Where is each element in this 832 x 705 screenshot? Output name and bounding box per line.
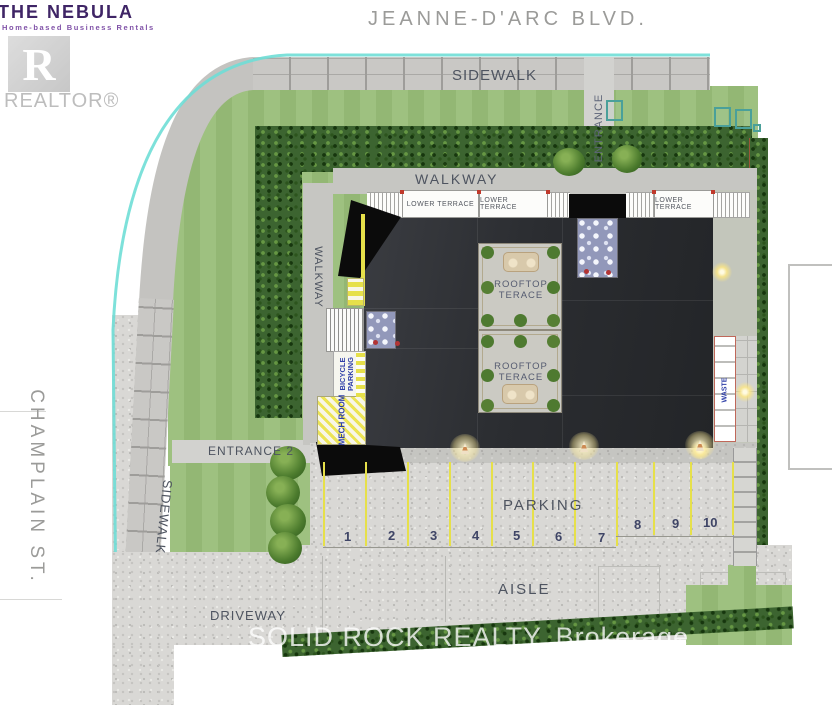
yellow-steps [347, 278, 364, 306]
parking-line [407, 462, 409, 546]
waste-label: WASTE [722, 378, 729, 403]
brokerage-watermark: SOLID ROCK REALTY, Brokerage [248, 622, 689, 653]
rooftop-2-line2: TERACE [486, 372, 556, 383]
parking-line [653, 462, 655, 535]
parking-line [732, 462, 734, 535]
parking-line [616, 462, 618, 546]
aisle-label: AISLE [498, 581, 551, 598]
parking-line [491, 462, 493, 546]
listing-tagline: Home-based Business Rentals [2, 23, 155, 32]
sidewalk-top-label: SIDEWALK [452, 67, 537, 84]
parking-boundary [323, 547, 616, 548]
parking-line [365, 462, 367, 546]
realtor-logo-letter: R [22, 38, 55, 91]
stairwell-top [577, 218, 618, 278]
parking-line [323, 462, 325, 546]
tree [612, 145, 642, 173]
terrace-table [502, 384, 538, 404]
terrace-table [503, 252, 539, 272]
tree [268, 532, 302, 564]
stairs-left [326, 308, 364, 352]
parking-space-9: 9 [672, 516, 679, 531]
rooftop-1-line2: TERACE [486, 290, 556, 301]
walkway-top-label: WALKWAY [415, 171, 499, 187]
stair-canopy [569, 194, 626, 218]
survey-dot [546, 190, 550, 194]
bicycle-line2: PARKING [347, 357, 355, 391]
parking-space-6: 6 [555, 529, 562, 544]
rooftop-1-line1: ROOFTOP [486, 279, 556, 290]
rooftop-2-line1: ROOFTOP [486, 361, 556, 372]
parking-space-5: 5 [513, 528, 520, 543]
mech-room-label: MECH ROOM [338, 395, 347, 446]
building-black-canopies [0, 0, 832, 705]
parking-label: PARKING [503, 497, 583, 514]
terrace-shrubs [481, 246, 494, 259]
parking-space-4: 4 [472, 528, 479, 543]
entrance2-label: ENTRANCE 2 [208, 444, 294, 458]
survey-dot [477, 190, 481, 194]
street-name-top: JEANNE-D'ARC BLVD. [368, 8, 648, 31]
aisle-line [445, 556, 446, 622]
bollard-cone [694, 439, 706, 452]
survey-dot [711, 190, 715, 194]
parking-space-3: 3 [430, 528, 437, 543]
parking-space-1: 1 [344, 529, 351, 544]
bicycle-hatch [356, 352, 365, 397]
realtor-logo: R [8, 36, 70, 92]
rooftop-terrace-1-label: ROOFTOP TERACE [486, 279, 556, 301]
stairwell-left [366, 311, 396, 349]
realtor-wordmark: REALTOR® [4, 90, 119, 113]
listing-title: THE NEBULA [0, 2, 134, 23]
lamp-glow [712, 262, 732, 282]
street-name-left: CHAMPLAIN ST. [25, 389, 47, 585]
rooftop-terrace-2-label: ROOFTOP TERACE [486, 361, 556, 383]
entrance-label: ENTRANCE [593, 94, 605, 163]
parking-space-10: 10 [703, 515, 717, 530]
parking-line [690, 462, 692, 535]
site-plan: LOWER TERRACE LOWER TERRACE LOWER TERRAC… [0, 0, 832, 705]
parking-boundary [616, 536, 733, 537]
parking-space-2: 2 [388, 528, 395, 543]
survey-dot [652, 190, 656, 194]
parking-line [449, 462, 451, 546]
walkway-left-label: WALKWAY [312, 246, 324, 308]
lamp-glow [735, 382, 755, 402]
tree [553, 148, 585, 176]
parking-space-8: 8 [634, 517, 641, 532]
driveway-label: DRIVEWAY [210, 608, 286, 623]
parking-space-7: 7 [598, 530, 605, 545]
bollard-cone [459, 442, 471, 455]
bollard-cone [578, 440, 590, 453]
survey-dot [400, 190, 404, 194]
bicycle-parking-label: BICYCLE PARKING [339, 357, 355, 391]
terrace-shrubs [481, 335, 494, 348]
